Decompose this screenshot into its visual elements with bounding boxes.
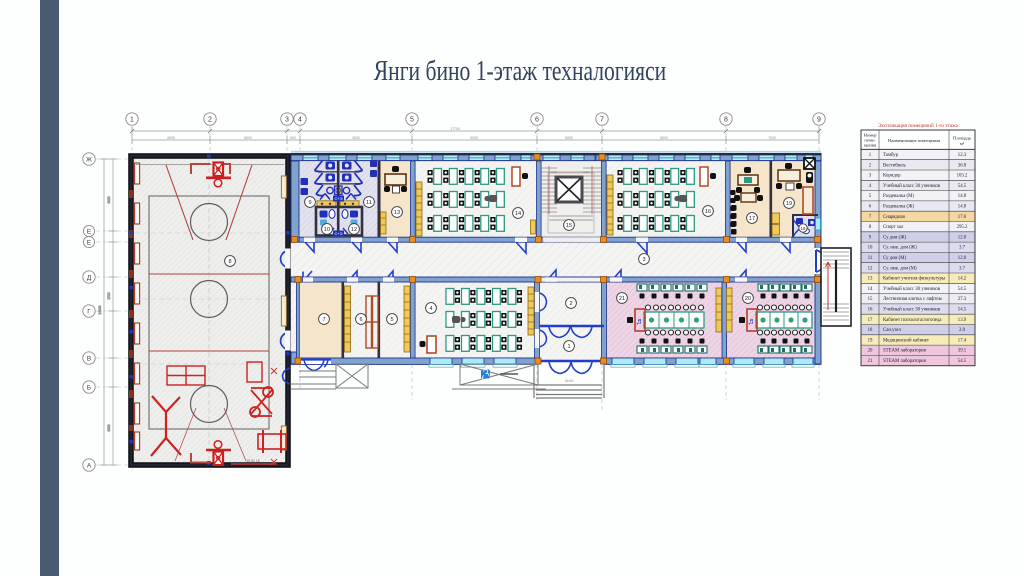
svg-text:12.0: 12.0 (958, 235, 967, 240)
svg-text:18: 18 (801, 226, 806, 231)
svg-text:15: 15 (868, 297, 873, 302)
svg-text:м²: м² (960, 141, 965, 146)
svg-text:24000: 24000 (98, 305, 102, 314)
svg-text:16: 16 (705, 209, 711, 215)
svg-text:17: 17 (868, 318, 873, 323)
svg-text:STEAM лаборатория: STEAM лаборатория (883, 359, 927, 364)
svg-text:Медицинский кабинет: Медицинский кабинет (883, 338, 930, 343)
svg-text:3: 3 (285, 117, 289, 124)
svg-text:Д: Д (87, 275, 92, 282)
svg-text:3000: 3000 (352, 136, 360, 140)
svg-text:39.1: 39.1 (958, 349, 967, 354)
svg-text:Су. инв. дом (М): Су. инв. дом (М) (883, 266, 917, 271)
svg-text:STEAM лаборатория: STEAM лаборатория (883, 349, 927, 354)
svg-text:54.5: 54.5 (958, 359, 967, 364)
svg-text:14.2: 14.2 (958, 277, 967, 282)
svg-text:Вестибюль: Вестибюль (883, 163, 907, 168)
svg-text:13: 13 (868, 277, 873, 282)
svg-text:5000: 5000 (565, 136, 573, 140)
svg-text:19: 19 (786, 201, 792, 207)
svg-text:Е: Е (87, 240, 91, 247)
svg-text:Раздевалка (М): Раздевалка (М) (883, 194, 914, 199)
svg-text:6: 6 (359, 317, 362, 323)
svg-text:295.2: 295.2 (957, 225, 968, 230)
svg-text:Кабинет учителя физкультуры: Кабинет учителя физкультуры (883, 277, 946, 282)
svg-text:Сан.узел: Сан.узел (883, 328, 902, 333)
svg-text:17.6: 17.6 (958, 215, 967, 220)
svg-text:Учебный класс 30 учеников: Учебный класс 30 учеников (883, 287, 941, 292)
svg-text:Су дом (М): Су дом (М) (883, 256, 907, 261)
svg-text:900: 900 (290, 136, 296, 140)
svg-text:103.2: 103.2 (957, 174, 968, 179)
svg-text:17700: 17700 (450, 127, 460, 131)
svg-text:5: 5 (390, 317, 393, 323)
svg-text:11: 11 (366, 200, 372, 206)
svg-text:щения: щения (864, 143, 877, 148)
svg-text:Е: Е (87, 229, 91, 236)
svg-text:21: 21 (868, 359, 873, 364)
svg-text:18: 18 (868, 328, 873, 333)
svg-text:2: 2 (208, 117, 212, 124)
svg-text:14.8: 14.8 (958, 194, 967, 199)
svg-text:5: 5 (410, 117, 414, 124)
svg-text:3.7: 3.7 (959, 246, 966, 251)
svg-text:Экспликация помещений 1-го эта: Экспликация помещений 1-го этажа (878, 122, 959, 129)
svg-text:11: 11 (868, 256, 873, 261)
svg-text:Коридор: Коридор (883, 174, 901, 179)
svg-text:1: 1 (567, 344, 570, 350)
svg-text:4: 4 (429, 306, 432, 312)
svg-text:Наименование помещения: Наименование помещения (888, 138, 941, 143)
svg-text:19: 19 (868, 338, 873, 343)
svg-text:С+Э: С+Э (334, 231, 342, 236)
svg-text:14.8: 14.8 (958, 205, 967, 210)
svg-text:8: 8 (724, 117, 728, 124)
svg-text:3: 3 (642, 257, 645, 263)
svg-text:15: 15 (566, 223, 572, 229)
svg-text:Су дом (Ж): Су дом (Ж) (883, 235, 907, 240)
svg-text:14: 14 (515, 211, 521, 217)
svg-text:16: 16 (868, 308, 873, 313)
svg-text:10: 10 (324, 227, 330, 233)
svg-text:14: 14 (868, 287, 873, 292)
svg-text:Раздевалка (Ж): Раздевалка (Ж) (883, 205, 914, 210)
svg-text:С+Э: С+Э (334, 196, 342, 201)
svg-text:Б: Б (87, 385, 91, 392)
svg-text:Су. инв. дом (Ж): Су. инв. дом (Ж) (883, 246, 917, 251)
svg-text:15x30: 15x30 (565, 379, 574, 383)
svg-text:3.7: 3.7 (959, 266, 966, 271)
svg-text:Г: Г (87, 309, 91, 316)
svg-text:21: 21 (619, 296, 625, 302)
svg-text:54.5: 54.5 (958, 184, 967, 189)
svg-text:36.0: 36.0 (958, 163, 967, 168)
svg-text:6000: 6000 (107, 196, 111, 203)
svg-text:Тамбур: Тамбур (883, 153, 899, 158)
svg-text:27.3: 27.3 (958, 297, 967, 302)
svg-text:Спорт зал: Спорт зал (883, 225, 904, 230)
svg-text:12.0: 12.0 (958, 256, 967, 261)
svg-text:12.3: 12.3 (958, 153, 967, 158)
svg-text:Площадь: Площадь (953, 136, 971, 141)
svg-text:13.9: 13.9 (958, 318, 967, 323)
svg-text:6: 6 (535, 117, 539, 124)
svg-text:7: 7 (322, 317, 325, 323)
svg-text:♬: ♬ (636, 316, 645, 326)
svg-text:13: 13 (394, 210, 400, 216)
svg-text:20: 20 (745, 296, 751, 302)
svg-text:17.4: 17.4 (958, 338, 967, 343)
svg-text:9: 9 (817, 117, 821, 124)
svg-text:20: 20 (868, 349, 873, 354)
svg-text:15 51 15: 15 51 15 (246, 459, 259, 463)
svg-text:9000: 9000 (470, 136, 478, 140)
svg-text:7000: 7000 (768, 136, 776, 140)
svg-text:2: 2 (569, 301, 572, 307)
svg-text:Ж: Ж (86, 157, 92, 164)
svg-text:9: 9 (308, 200, 311, 206)
svg-text:10: 10 (868, 246, 873, 251)
svg-text:4: 4 (298, 117, 302, 124)
svg-text:Кабинет психолога/логопеда: Кабинет психолога/логопеда (883, 318, 942, 323)
svg-text:1: 1 (130, 117, 134, 124)
svg-text:В: В (87, 356, 91, 363)
svg-text:Учебный класс 30 учеников: Учебный класс 30 учеников (883, 308, 941, 313)
svg-text:8: 8 (228, 259, 231, 265)
svg-text:6000: 6000 (167, 136, 175, 140)
svg-text:7: 7 (600, 117, 604, 124)
svg-text:Лестничная клетка с лифтом: Лестничная клетка с лифтом (883, 297, 942, 302)
svg-text:12: 12 (351, 227, 357, 233)
svg-text:2700: 2700 (107, 292, 111, 299)
svg-text:12: 12 (868, 266, 873, 271)
svg-text:17: 17 (749, 216, 755, 222)
svg-text:54.5: 54.5 (958, 308, 967, 313)
svg-text:Учебный класс 30 учеников: Учебный класс 30 учеников (883, 184, 941, 189)
svg-text:2.0: 2.0 (959, 328, 966, 333)
svg-text:6000: 6000 (107, 424, 111, 431)
svg-text:6000: 6000 (244, 136, 252, 140)
svg-text:А: А (87, 463, 92, 470)
svg-text:♬: ♬ (748, 316, 757, 326)
svg-text:Снарядная: Снарядная (883, 215, 906, 220)
svg-text:6000: 6000 (660, 136, 668, 140)
svg-text:54.5: 54.5 (958, 287, 967, 292)
